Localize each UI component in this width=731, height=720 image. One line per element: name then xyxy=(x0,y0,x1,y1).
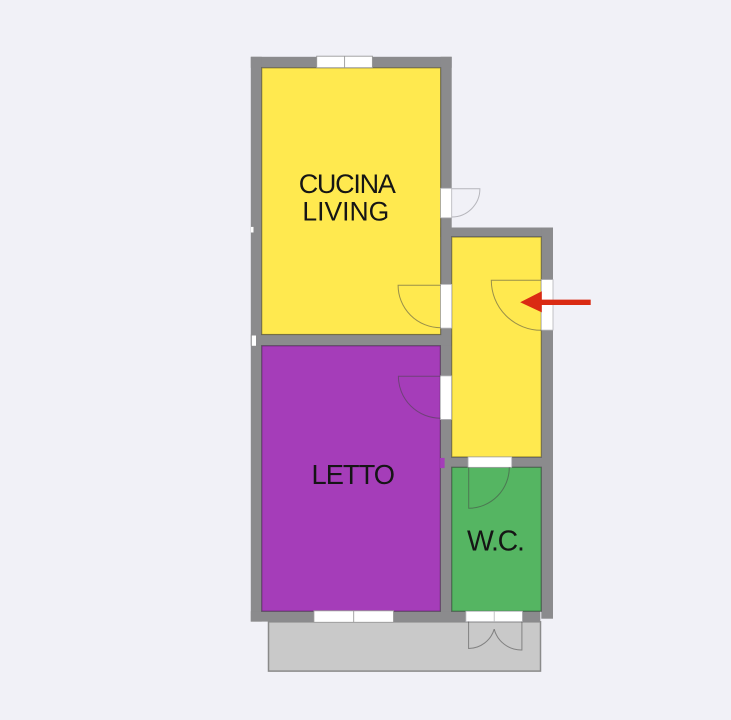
svg-text:LETTO: LETTO xyxy=(312,459,394,490)
svg-text:LIVING: LIVING xyxy=(302,196,389,226)
svg-text:CUCINA: CUCINA xyxy=(299,169,396,199)
svg-text:W.C.: W.C. xyxy=(467,525,524,557)
